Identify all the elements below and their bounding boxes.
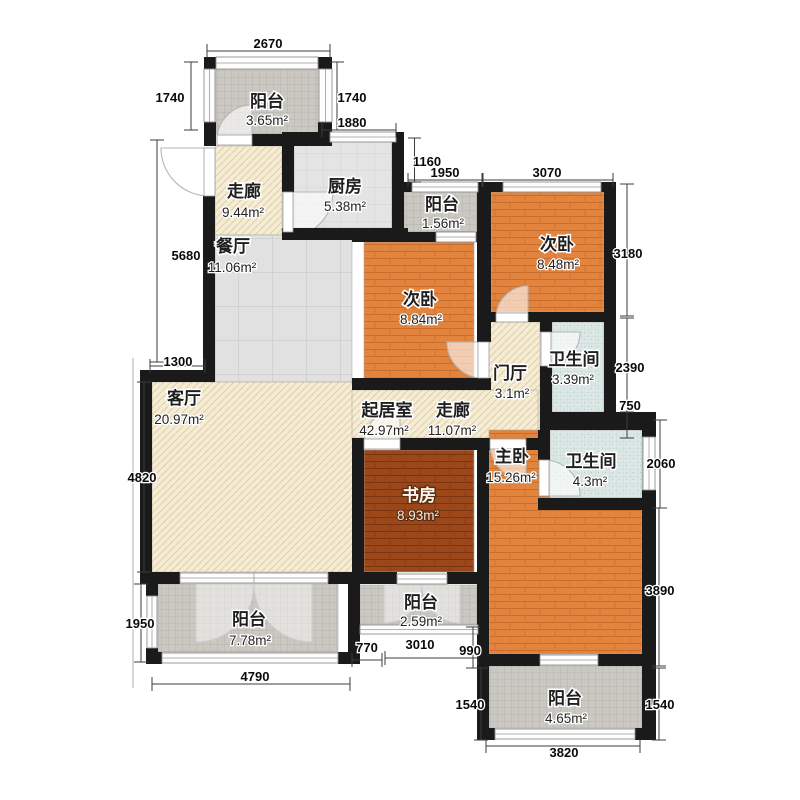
room-area-balcony-top: 3.65m² <box>246 113 289 128</box>
floorplan-canvas: 2670 1740 1740 1880 1160 1950 3070 3180 … <box>0 0 800 800</box>
door-swing-arc <box>161 148 209 196</box>
room-name-living: 客厅 <box>166 388 201 408</box>
dim-label: 2060 <box>647 456 676 471</box>
door-leaf <box>283 192 293 232</box>
wall-segment <box>400 438 486 450</box>
room-area-entry-hall: 3.1m² <box>495 386 530 401</box>
dim-label: 3010 <box>406 637 435 652</box>
room-area-balcony-small: 1.56m² <box>422 216 465 231</box>
dim-label: 1300 <box>164 354 193 369</box>
room-area-bath-2: 4.3m² <box>573 474 608 489</box>
room-area-balcony-br: 4.65m² <box>545 711 588 726</box>
door-leaf <box>539 460 549 496</box>
wall-segment <box>203 196 215 382</box>
door-leaf <box>204 148 215 196</box>
dim-3180: 3180 <box>614 184 643 316</box>
window <box>495 729 635 739</box>
wall-segment <box>477 654 540 666</box>
dim-3820: 3820 <box>486 739 640 760</box>
dim-label: 750 <box>619 398 641 413</box>
wall-segment <box>352 232 436 242</box>
dim-label: 2390 <box>616 360 645 375</box>
room-area-bedroom2-mid: 8.84m² <box>400 312 443 327</box>
wall-segment <box>604 182 616 422</box>
wall-segment <box>477 378 491 390</box>
window <box>180 573 328 583</box>
room-name-bedroom2-mid: 次卧 <box>403 289 437 309</box>
floorplan-svg: 2670 1740 1740 1880 1160 1950 3070 3180 … <box>0 0 800 800</box>
wall-segment <box>146 652 162 664</box>
wall-segment <box>540 366 552 412</box>
wall-segment <box>447 572 477 584</box>
room-area-living: 20.97m² <box>154 412 204 427</box>
room-area-balcony-bm: 2.59m² <box>400 614 443 629</box>
dim-label: 1740 <box>156 90 185 105</box>
door-leaf <box>496 313 528 322</box>
wall-segment <box>352 438 364 584</box>
room-floor <box>215 235 352 382</box>
wall-segment <box>318 57 332 69</box>
door-leaf <box>217 135 252 145</box>
wall-segment <box>282 132 294 192</box>
dim-label: 1880 <box>338 115 367 130</box>
dim-label: 990 <box>459 643 481 658</box>
wall-segment <box>204 57 216 69</box>
room-area-corridor-main: 11.07m² <box>428 423 477 438</box>
dim-4790: 4790 <box>152 669 350 691</box>
room-name-balcony-bm: 阳台 <box>404 592 438 612</box>
dim-label: 1540 <box>456 697 485 712</box>
dim-label: 5680 <box>172 248 201 263</box>
window <box>319 69 332 122</box>
wall-segment <box>538 430 550 460</box>
room-area-bedroom2-right: 8.48m² <box>537 257 580 272</box>
room-name-entry-hall: 门厅 <box>493 363 527 383</box>
room-floor <box>152 382 360 572</box>
window <box>436 232 476 242</box>
dim-label: 4790 <box>241 669 270 684</box>
wall-segment <box>140 572 180 584</box>
room-name-study: 书房 <box>402 485 436 505</box>
room-area-balcony-bl: 7.78m² <box>229 633 272 648</box>
wall-segment <box>328 572 397 584</box>
room-name-balcony-br: 阳台 <box>548 688 582 708</box>
window <box>330 132 396 142</box>
room-area-family-room: 42.97m² <box>359 423 409 438</box>
wall-segment <box>204 122 216 146</box>
wall-segment <box>491 182 503 192</box>
dim-label: 3890 <box>646 583 675 598</box>
wall-segment <box>352 378 491 390</box>
window <box>412 182 478 192</box>
wall-segment <box>146 584 158 596</box>
room-name-family-room: 起居室 <box>361 400 413 420</box>
wall-segment <box>598 654 654 666</box>
dim-label: 1950 <box>431 165 460 180</box>
door-leaf <box>478 342 489 378</box>
room-area-corridor-top: 9.44m² <box>222 205 265 220</box>
dim-label: 1950 <box>126 616 155 631</box>
wall-segment <box>635 728 656 740</box>
dim-label: 3070 <box>533 165 562 180</box>
room-area-dining: 11.06m² <box>208 260 257 275</box>
dim-label: 770 <box>356 640 378 655</box>
room-area-study: 8.93m² <box>397 508 440 523</box>
dim-label: 4820 <box>128 470 157 485</box>
dim-label: 2670 <box>254 36 283 51</box>
window <box>540 655 598 665</box>
room-name-bath-2: 卫生间 <box>566 451 617 471</box>
dim-label: 1740 <box>338 90 367 105</box>
room-name-corridor-top: 走廊 <box>227 181 261 201</box>
wall-segment <box>477 728 495 740</box>
door-leaf <box>364 439 400 449</box>
wall-segment <box>538 498 656 510</box>
room-name-balcony-bl: 阳台 <box>232 609 266 629</box>
dim-label: 3180 <box>614 246 643 261</box>
dim-1740-left: 1740 <box>156 62 198 130</box>
room-name-bath-1: 卫生间 <box>549 349 600 369</box>
window <box>216 57 318 69</box>
wall-segment <box>477 182 491 342</box>
room-area-kitchen: 5.38m² <box>324 199 367 214</box>
wall-segment <box>528 312 604 322</box>
dim-label: 3820 <box>550 745 579 760</box>
room-name-balcony-top: 阳台 <box>250 91 284 111</box>
wall-segment <box>642 412 656 437</box>
room-name-balcony-small: 阳台 <box>425 194 459 214</box>
room-name-master: 主卧 <box>495 446 529 466</box>
dim-label: 1540 <box>646 697 675 712</box>
room-name-bedroom2-right: 次卧 <box>540 234 574 254</box>
window <box>162 653 338 663</box>
dim-2670: 2670 <box>207 36 330 58</box>
room-name-kitchen: 厨房 <box>328 176 362 196</box>
room-name-corridor-main: 走廊 <box>436 400 470 420</box>
window <box>503 182 601 192</box>
window <box>204 69 215 122</box>
wall-segment <box>540 412 656 430</box>
window <box>397 574 447 584</box>
room-area-master: 15.26m² <box>486 470 536 485</box>
wall-segment <box>392 132 404 242</box>
room-area-bath-1: 3.39m² <box>552 372 595 387</box>
wall-segment <box>540 312 552 332</box>
wall-segment <box>491 312 496 322</box>
room-name-dining: 餐厅 <box>216 236 250 256</box>
